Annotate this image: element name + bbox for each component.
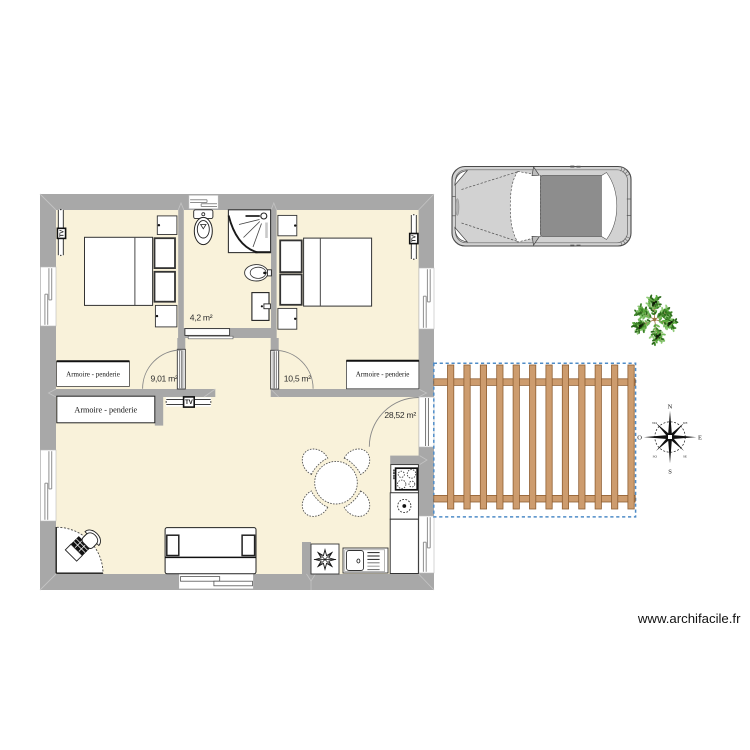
svg-text:10,5 m²: 10,5 m² — [284, 373, 311, 383]
svg-text:Armoire - penderie: Armoire - penderie — [66, 370, 120, 378]
svg-text:SO: SO — [653, 455, 658, 459]
svg-text:Armoire - penderie: Armoire - penderie — [74, 405, 137, 414]
svg-text:4,2 m²: 4,2 m² — [190, 313, 213, 323]
svg-text:TV: TV — [185, 400, 193, 406]
svg-text:TV: TV — [412, 235, 418, 242]
svg-text:E: E — [698, 435, 702, 442]
svg-text:SE: SE — [683, 455, 687, 459]
svg-text:NO: NO — [652, 421, 657, 425]
svg-text:O: O — [637, 435, 642, 442]
svg-text:TV: TV — [59, 230, 65, 237]
svg-text:9,01 m²: 9,01 m² — [151, 373, 178, 383]
svg-text:www.archifacile.fr: www.archifacile.fr — [637, 611, 741, 626]
svg-text:Armoire - penderie: Armoire - penderie — [356, 370, 410, 378]
svg-text:N: N — [668, 404, 673, 411]
svg-text:S: S — [668, 469, 672, 476]
svg-text:NE: NE — [683, 421, 688, 425]
svg-text:28,52 m²: 28,52 m² — [384, 410, 416, 420]
